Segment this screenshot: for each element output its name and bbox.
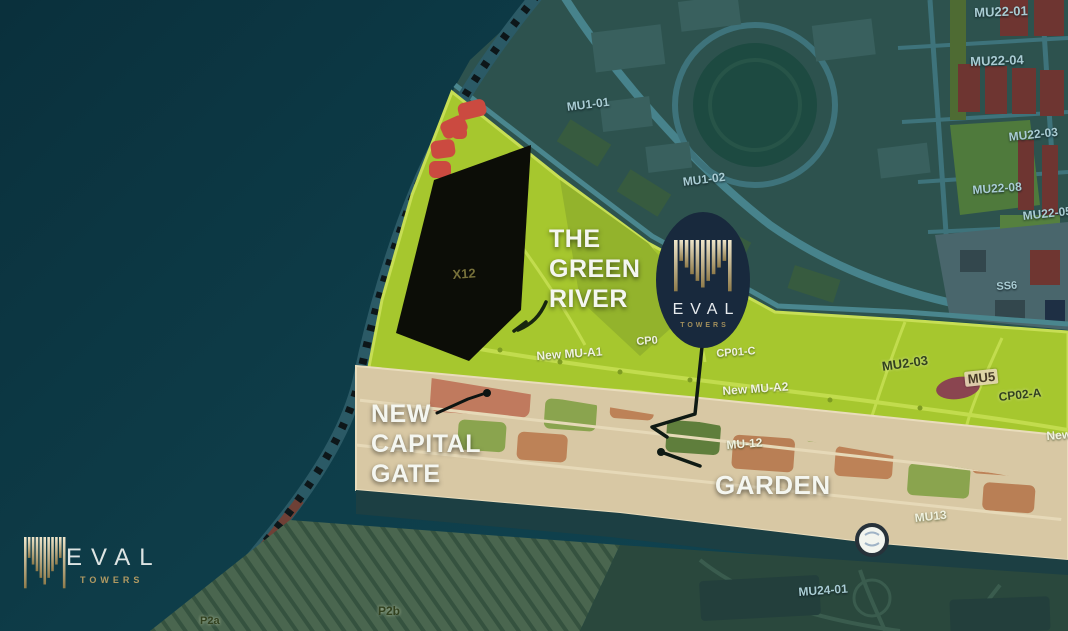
eval-oval-brand-sub: TOWERS [653, 322, 753, 329]
plot-label: MU22-04 [970, 52, 1024, 69]
callout-line: GATE [371, 459, 481, 489]
eval-corner-brand-name: EVAL [66, 544, 162, 572]
callout-line: CAPITAL [371, 429, 481, 459]
map-artwork [0, 0, 1068, 631]
plot-label: P2a [200, 615, 220, 627]
plot-label: P2b [378, 604, 400, 618]
capital-gate-callout: NEW CAPITAL GATE [371, 399, 481, 489]
plot-label: MU22-01 [974, 3, 1028, 20]
masterplan-map: THE GREEN RIVER NEW CAPITAL GATE GARDEN … [0, 0, 1068, 631]
eval-corner-logo-icon [24, 537, 65, 588]
station-marker [857, 525, 887, 555]
callout-line: NEW [371, 399, 481, 429]
plot-label: New [1046, 427, 1068, 443]
plot-label: SS6 [996, 280, 1018, 293]
plot-label: X12 [452, 265, 476, 282]
plot-label: MU-12 [726, 435, 763, 451]
garden-callout: GARDEN [715, 470, 831, 501]
callout-line: RIVER [549, 284, 640, 314]
plot-label: CP0 [636, 335, 658, 348]
eval-corner-brand-sub: TOWERS [80, 575, 143, 585]
callout-line: GREEN [549, 254, 640, 284]
callout-line: THE [549, 224, 640, 254]
eval-oval-brand-name: EVAL [653, 301, 753, 319]
green-river-callout: THE GREEN RIVER [549, 224, 640, 314]
